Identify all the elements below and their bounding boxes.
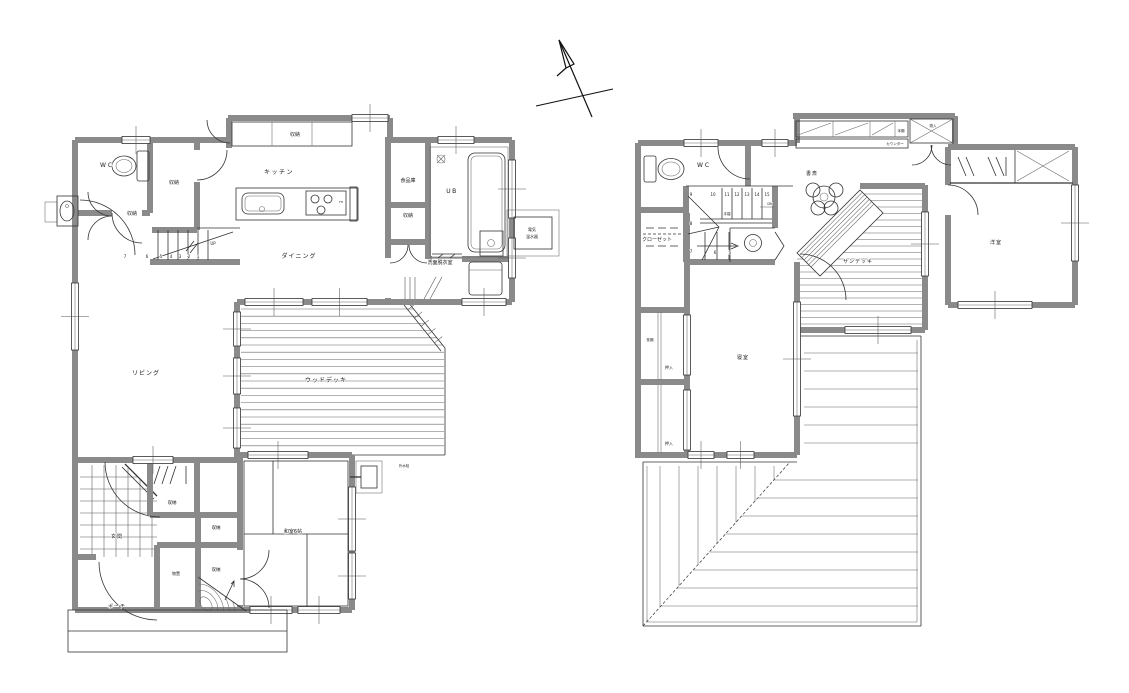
label-sn15: 15 [764,192,770,197]
label-storage-hall: 収納 [127,210,137,217]
bath-tub [430,147,508,258]
label-sn7: 7 [124,254,127,259]
label-unit-bath: UB [446,188,458,195]
kitchen-island [236,187,358,221]
label-sun-deck: サンデッキ [843,258,873,265]
label-western-room: 洋室 [990,239,1002,246]
label-sn7b: 7 [690,249,693,254]
label-sn10: 10 [710,192,716,197]
label-oshiire-1: 押入 [665,364,673,370]
label-genkan: 玄関 [111,533,123,540]
label-storage-low: 収納 [212,566,221,573]
label-kitchen: キッチン [264,169,294,176]
study-table [806,183,843,215]
label-makuradana: 枕棚 [647,337,655,342]
label-outdoor-tap: 外水栓 [399,463,410,468]
label-pantry: 食品庫 [400,177,415,184]
label-stair-up: UP [210,241,216,246]
north-arrow-icon [536,40,613,117]
label-washroom: 洗面脱衣室 [427,259,452,266]
label-sn1: 1 [197,254,200,259]
entrance-tile-grid [80,465,157,557]
label-stair-dn: DN [767,202,773,206]
label-wc: WC [100,162,114,169]
roof-hatch [660,353,918,607]
toilet-1f [112,151,149,181]
label-sn8: 8 [690,221,693,226]
label-sn6: 6 [146,254,149,259]
storage-box-2f [910,119,953,143]
label-porch: ポーチ [108,603,126,610]
floor1-plan [45,104,559,652]
label-water-heater-2: 温水器 [526,233,538,239]
label-counter: カウンター [886,141,904,146]
label-sn6b: 6 [714,250,717,255]
label-sn11: 11 [724,192,730,197]
entrance-steps [68,610,287,652]
floor1-windows [61,104,526,624]
label-storage-kitchen: 収納 [290,131,300,138]
label-wood-deck: ウッドデッキ [305,376,347,384]
label-storage-box: 物入 [930,123,938,128]
label-sn2: 2 [188,254,191,259]
label-wc: WC [697,162,711,169]
label-storage-mid: 収納 [212,524,221,531]
coat-hooks [154,466,186,484]
label-sn13: 13 [744,192,750,197]
label-handrail: 手摺 [724,211,732,216]
label-storage-by-wc: 収納 [169,179,179,186]
label-oshiire-2: 押入 [665,440,673,446]
label-sn5b: 5 [729,250,732,255]
label-living: リビング [132,369,160,377]
label-sn5: 5 [160,254,163,259]
floor2-plan [638,116,1089,626]
western-room-closet [950,150,1073,183]
label-closet: クローゼット [642,236,672,243]
label-washitsu: 和室6帖 [284,528,302,535]
label-dining: ダイニング [281,252,316,260]
label-bookshelf: 本棚 [898,128,906,133]
toilet-2f [644,156,684,182]
label-sn12: 12 [734,192,740,197]
label-storage-hall2: 収納 [168,499,177,506]
label-study: 書斎 [806,170,818,177]
floor1-labels: WC収納収納キッチン収納食品庫UB収納ダイニングUP7654321洗面脱衣室電気… [100,131,538,610]
floor2-windows [684,129,1090,469]
label-monooki: 物置 [172,570,180,576]
label-storage-pantry: 収納 [403,212,413,219]
label-sn4: 4 [170,254,173,259]
floor-plan-page: WC収納収納キッチン収納食品庫UB収納ダイニングUP7654321洗面脱衣室電気… [0,0,1129,693]
label-water-heater-1: 電気 [528,226,536,232]
label-bedroom: 寝室 [737,354,749,361]
floor-plan-canvas: WC収納収納キッチン収納食品庫UB収納ダイニングUP7654321洗面脱衣室電気… [0,0,1129,693]
label-sn9: 9 [690,192,693,197]
label-sn14: 14 [754,192,760,197]
bookshelf [796,121,908,137]
label-fh: FH [339,200,343,204]
label-sn3: 3 [179,254,182,259]
stairs-1f [153,230,233,260]
toilet-room-2f [730,228,784,262]
